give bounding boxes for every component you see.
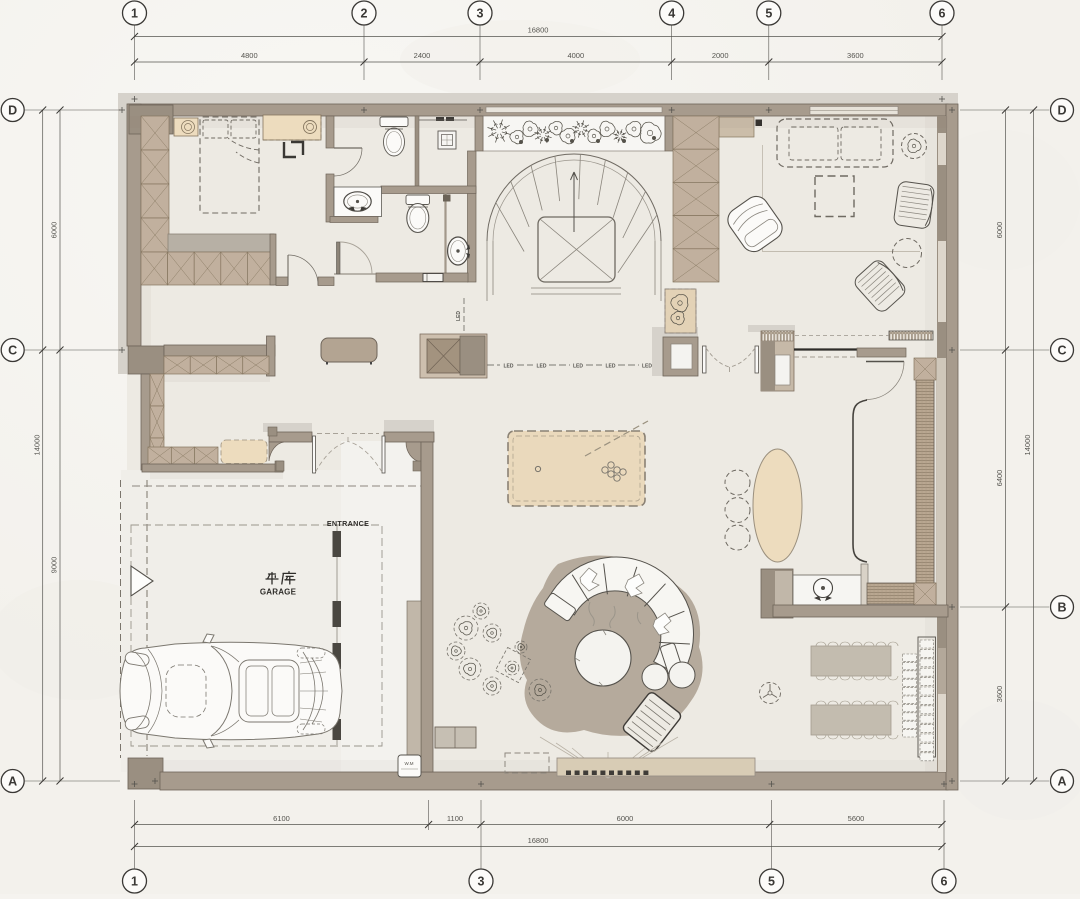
- svg-text:LED: LED: [573, 363, 583, 369]
- svg-text:3600: 3600: [847, 51, 864, 60]
- svg-text:6000: 6000: [617, 814, 634, 823]
- svg-text:4800: 4800: [241, 51, 258, 60]
- svg-text:D: D: [8, 103, 17, 117]
- svg-text:A: A: [1057, 774, 1066, 788]
- svg-text:5: 5: [768, 874, 775, 888]
- svg-text:B: B: [1057, 600, 1066, 614]
- svg-text:6: 6: [939, 6, 946, 20]
- svg-text:C: C: [1057, 343, 1066, 357]
- svg-text:6000: 6000: [50, 222, 59, 239]
- svg-text:4: 4: [668, 6, 675, 20]
- svg-text:ENTRANCE: ENTRANCE: [327, 519, 369, 528]
- svg-text:A: A: [8, 774, 17, 788]
- svg-text:1: 1: [131, 874, 138, 888]
- svg-text:6400: 6400: [995, 470, 1004, 487]
- svg-text:D: D: [1057, 103, 1066, 117]
- svg-text:LED: LED: [537, 363, 547, 369]
- svg-text:14000: 14000: [1023, 435, 1032, 456]
- svg-text:C: C: [8, 343, 17, 357]
- svg-text:LED: LED: [456, 311, 462, 321]
- svg-text:2: 2: [361, 6, 368, 20]
- svg-text:W.M: W.M: [405, 761, 414, 766]
- svg-text:9000: 9000: [50, 557, 59, 574]
- svg-text:16800: 16800: [528, 836, 549, 845]
- svg-text:5: 5: [765, 6, 772, 20]
- svg-text:2400: 2400: [414, 51, 431, 60]
- svg-text:5600: 5600: [848, 814, 865, 823]
- svg-text:3600: 3600: [995, 686, 1004, 703]
- svg-text:14000: 14000: [33, 435, 42, 456]
- svg-text:1: 1: [131, 6, 138, 20]
- svg-text:2000: 2000: [712, 51, 729, 60]
- svg-text:4000: 4000: [567, 51, 584, 60]
- svg-text:6: 6: [941, 874, 948, 888]
- svg-text:LED: LED: [504, 363, 514, 369]
- svg-text:3: 3: [477, 6, 484, 20]
- svg-text:LED: LED: [606, 363, 616, 369]
- svg-text:6000: 6000: [995, 222, 1004, 239]
- svg-text:GARAGE: GARAGE: [260, 588, 297, 597]
- svg-text:LED: LED: [642, 363, 652, 369]
- svg-text:3: 3: [478, 874, 485, 888]
- svg-text:6100: 6100: [273, 814, 290, 823]
- svg-text:16800: 16800: [528, 26, 549, 35]
- svg-text:1100: 1100: [447, 814, 463, 823]
